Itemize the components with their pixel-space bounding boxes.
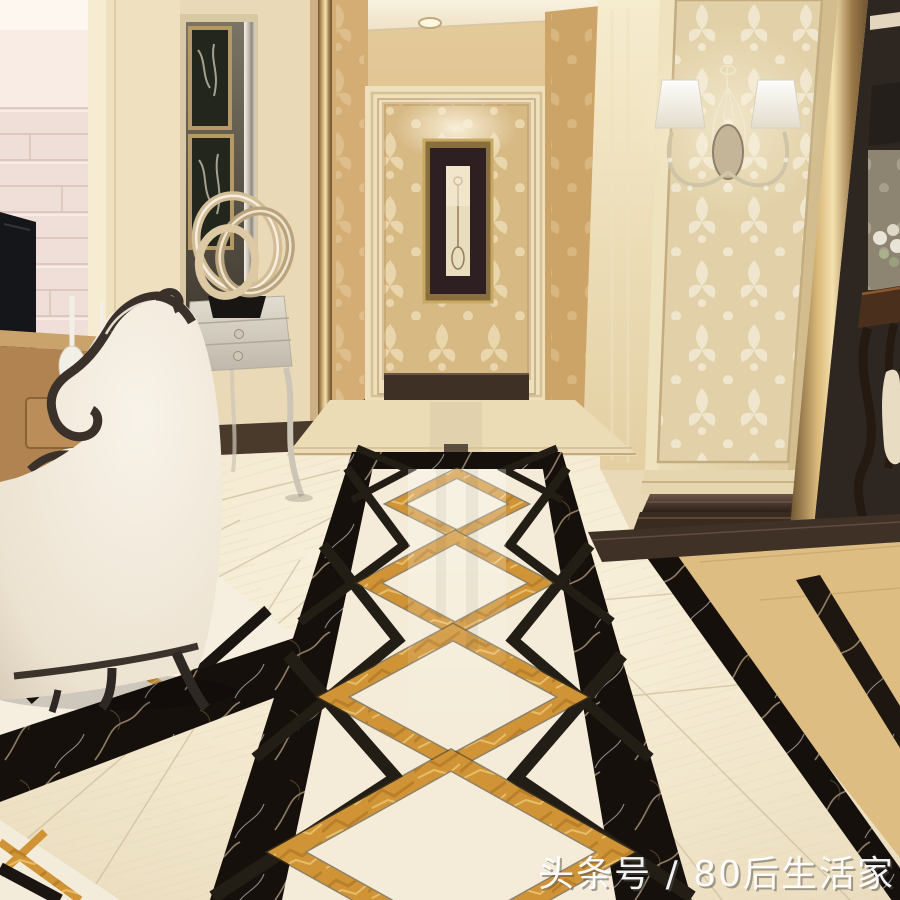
alcove-artwork [424,137,492,302]
alcove [365,86,548,400]
gold-trim-bar-left [318,0,332,448]
door-step-shadow [444,444,468,453]
lamp-shade-silhouette [868,82,900,146]
picture-frame-reflection [190,28,232,248]
hall-left-wall [332,0,368,452]
sconce-shade-left [655,80,705,128]
scene-canvas: 头条号 / 80后生活家 头条号 / 80后生活家 [0,0,900,900]
dining-chair-scroll [882,370,900,465]
alcove-baseboard [384,374,529,400]
sconce-backplate [713,125,743,179]
watermark: 头条号 / 80后生活家 头条号 / 80后生活家 [538,854,897,897]
floor-reflection [408,469,506,739]
interior-photo: 头条号 / 80后生活家 头条号 / 80后生活家 [0,0,900,900]
sconce-shade-right [751,80,801,128]
watermark-text: 头条号 / 80后生活家 [538,854,895,895]
sculpture-base [208,296,266,318]
